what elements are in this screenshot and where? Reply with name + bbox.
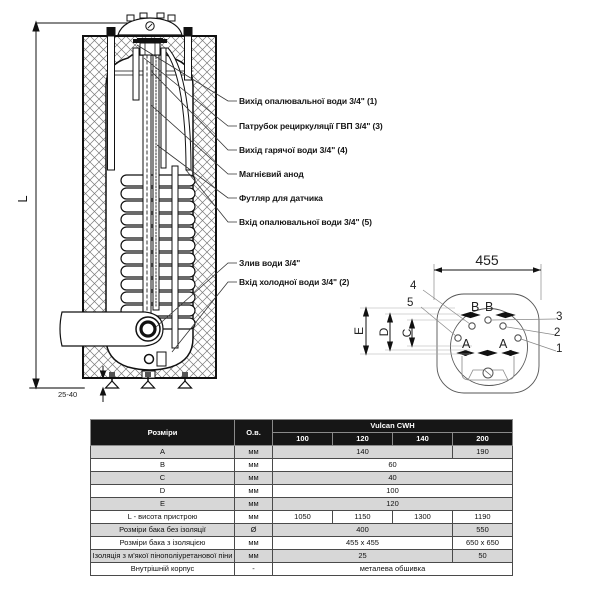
table-title: Розміри bbox=[91, 420, 235, 446]
left-pipe-stub bbox=[107, 27, 116, 36]
model-header-200: 200 bbox=[453, 433, 513, 446]
model-header-120: 120 bbox=[333, 433, 393, 446]
recirculation-pipe bbox=[133, 48, 139, 100]
callout-recirculation: Патрубок рециркуляції ГВП 3/4" (3) bbox=[239, 121, 383, 131]
port-number-3: 3 bbox=[556, 311, 562, 323]
table-row: B мм 60 bbox=[91, 459, 513, 472]
dim-letter-a2: A bbox=[499, 337, 507, 351]
table-row: E мм 120 bbox=[91, 498, 513, 511]
callout-hot-water-outlet: Вихід гарячої води 3/4" (4) bbox=[239, 145, 347, 155]
coil-return-pipe bbox=[172, 166, 178, 348]
table-unit-col-header: О.в. bbox=[235, 420, 273, 446]
height-dim-label: L bbox=[16, 192, 30, 206]
callout-sensor-sleeve: Футляр для датчика bbox=[239, 193, 323, 203]
right-pipe-stub bbox=[184, 27, 193, 36]
dim-a-arrows bbox=[458, 351, 518, 356]
dim-letter-a1: A bbox=[462, 337, 470, 351]
left-pipe bbox=[108, 36, 115, 170]
port-number-4: 4 bbox=[410, 280, 416, 292]
model-header-140: 140 bbox=[393, 433, 453, 446]
table-row: A мм 140 190 bbox=[91, 446, 513, 459]
table-row: Розміри бака без ізоляції Ø 400 550 bbox=[91, 524, 513, 537]
foot-clearance-label: 25-40 bbox=[58, 390, 77, 399]
port-number-1: 1 bbox=[556, 343, 562, 355]
dimensions-table: Розміри О.в. Vulcan CWH 100 120 140 200 … bbox=[90, 419, 513, 576]
dim-letter-e: E bbox=[352, 324, 366, 338]
table-row: Ізоляція з м'якої пінополіуретанової пін… bbox=[91, 550, 513, 563]
drain-port bbox=[145, 355, 154, 364]
callout-drain: Злив води 3/4" bbox=[239, 258, 300, 268]
dim-letter-b1: B bbox=[471, 300, 479, 314]
catalog-page: Вихід опалювальної води 3/4" (1) Патрубо… bbox=[0, 0, 600, 600]
table-row: D мм 100 bbox=[91, 485, 513, 498]
table-row: L - висота пристрою мм 1050 1150 1300 11… bbox=[91, 511, 513, 524]
callout-heating-inlet: Вхід опалювальної води 3/4" (5) bbox=[239, 217, 372, 227]
foot-clearance-dimension bbox=[100, 366, 105, 402]
table-row: Внутрішній корпус - металева обшивка bbox=[91, 563, 513, 576]
dim-letter-d: D bbox=[377, 325, 391, 339]
callout-heating-outlet: Вихід опалювальної води 3/4" (1) bbox=[239, 96, 377, 106]
table-row: Розміри бака з ізоляцією мм 455 x 455 65… bbox=[91, 537, 513, 550]
port-number-2: 2 bbox=[554, 327, 560, 339]
port-number-5: 5 bbox=[407, 297, 413, 309]
right-pipe bbox=[185, 36, 192, 80]
callout-magnesium-anode: Магнієвий анод bbox=[239, 169, 304, 179]
dim-letter-c: C bbox=[400, 326, 414, 340]
model-header-100: 100 bbox=[273, 433, 333, 446]
table-series-header: Vulcan CWH bbox=[273, 420, 513, 433]
table-row: C мм 40 bbox=[91, 472, 513, 485]
dim-letter-b2: B bbox=[485, 300, 493, 314]
top-width-dim-label: 455 bbox=[465, 252, 509, 268]
callout-cold-inlet: Вхід холодної води 3/4" (2) bbox=[239, 277, 349, 287]
cap-flange bbox=[137, 38, 163, 43]
